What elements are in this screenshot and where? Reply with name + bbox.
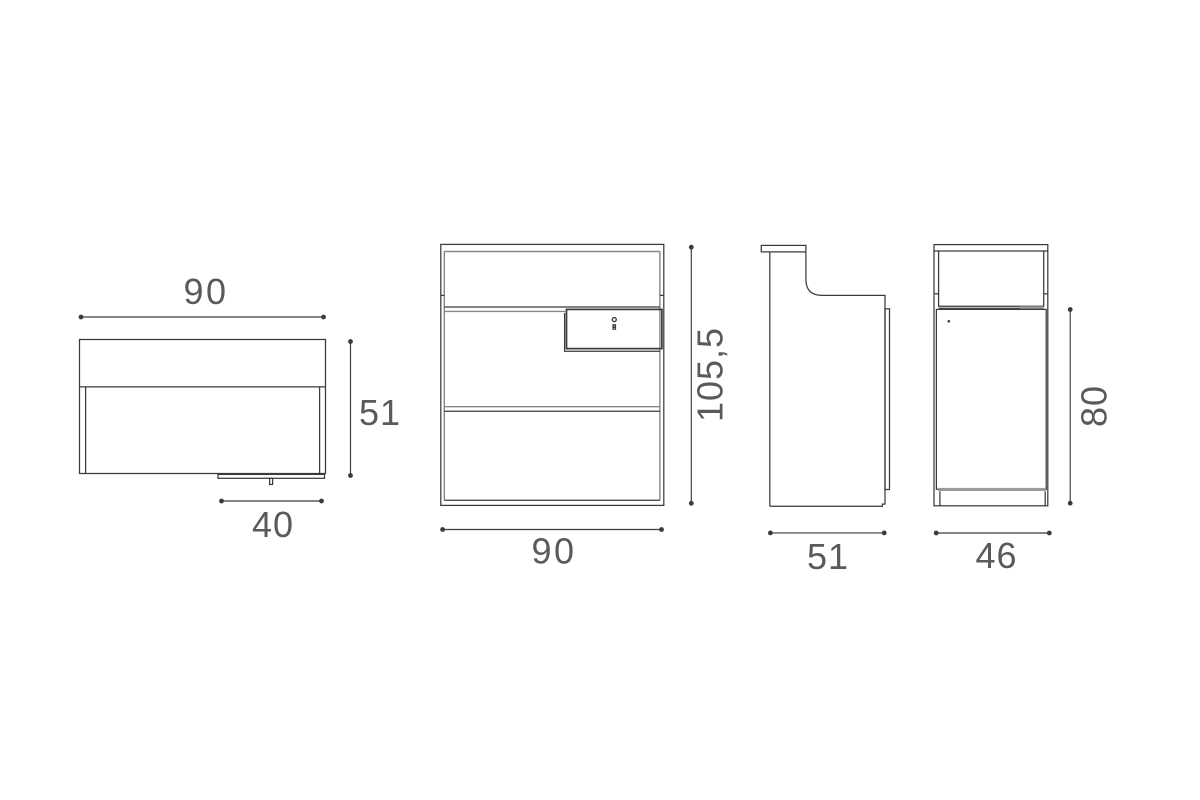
svg-text:40: 40 <box>252 504 294 545</box>
svg-text:46: 46 <box>975 535 1017 576</box>
svg-text:80: 80 <box>1074 385 1115 427</box>
svg-text:105,5: 105,5 <box>690 327 731 422</box>
svg-text:51: 51 <box>359 392 401 433</box>
svg-text:90: 90 <box>183 271 228 312</box>
svg-text:51: 51 <box>807 536 849 577</box>
svg-text:90: 90 <box>531 531 576 572</box>
